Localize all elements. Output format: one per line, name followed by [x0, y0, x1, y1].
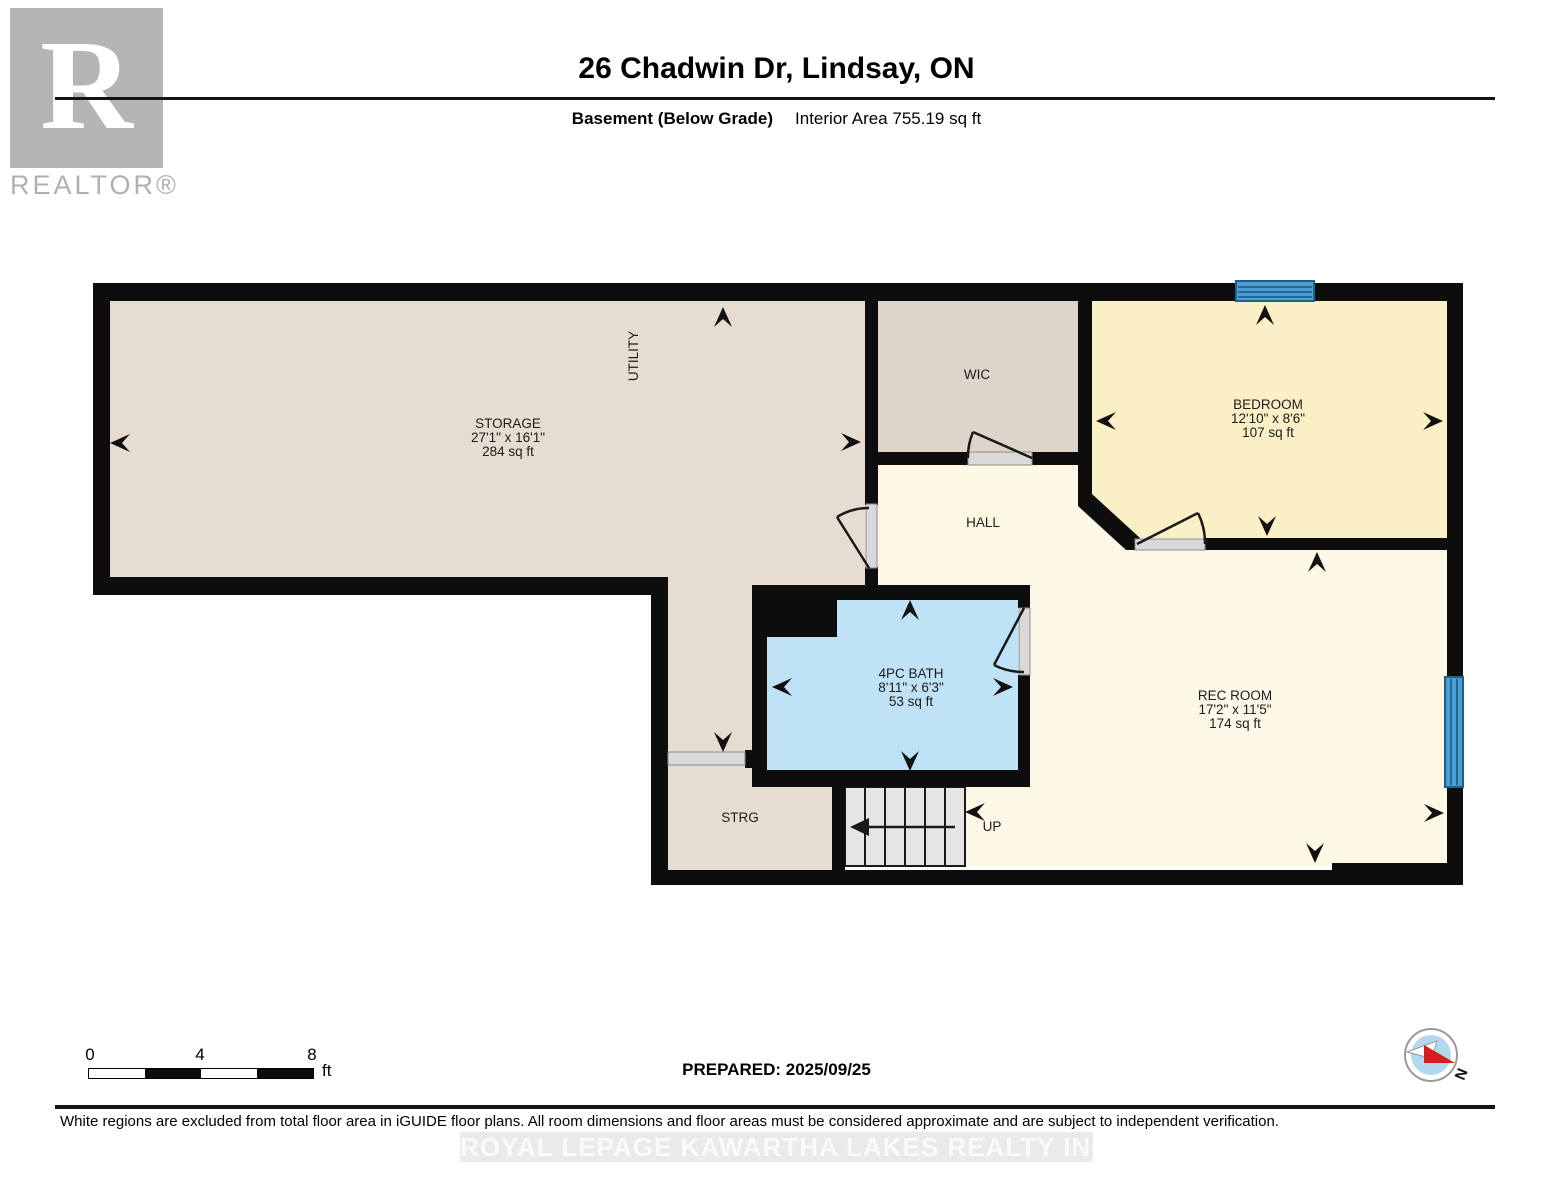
bedroom-label: BEDROOM 12'10" x 8'6" 107 sq ft	[1231, 398, 1305, 440]
strg-room-label: STRG	[721, 811, 759, 825]
wic-room-label: WIC	[964, 368, 990, 382]
header-divider	[55, 97, 1495, 100]
staircase	[845, 787, 965, 866]
disclaimer-text: White regions are excluded from total fl…	[60, 1113, 1360, 1130]
strg-door-sill	[668, 752, 745, 765]
recroom-window	[1445, 677, 1463, 787]
hall-label: HALL	[966, 516, 1000, 530]
brokerage-watermark: ROYAL LEPAGE KAWARTHA LAKES REALTY INC.,…	[460, 1132, 1093, 1162]
prepared-date: PREPARED: 2025/09/25	[0, 1060, 1553, 1080]
footer-divider	[55, 1105, 1495, 1109]
bath-label: 4PC BATH 8'11" x 6'3" 53 sq ft	[878, 667, 944, 709]
utility-room-label: UTILITY	[627, 331, 641, 381]
hall-door-sill	[866, 504, 877, 568]
floor-plan-drawing: N	[0, 0, 1553, 1200]
storage-room-label: STORAGE 27'1" x 16'1" 284 sq ft	[471, 417, 545, 459]
bath-door-sill	[1019, 608, 1030, 675]
bedroom-window	[1236, 281, 1314, 301]
stairs-up-label: UP	[983, 820, 1002, 834]
rec-room-label: REC ROOM 17'2" x 11'5" 174 sq ft	[1198, 689, 1272, 731]
